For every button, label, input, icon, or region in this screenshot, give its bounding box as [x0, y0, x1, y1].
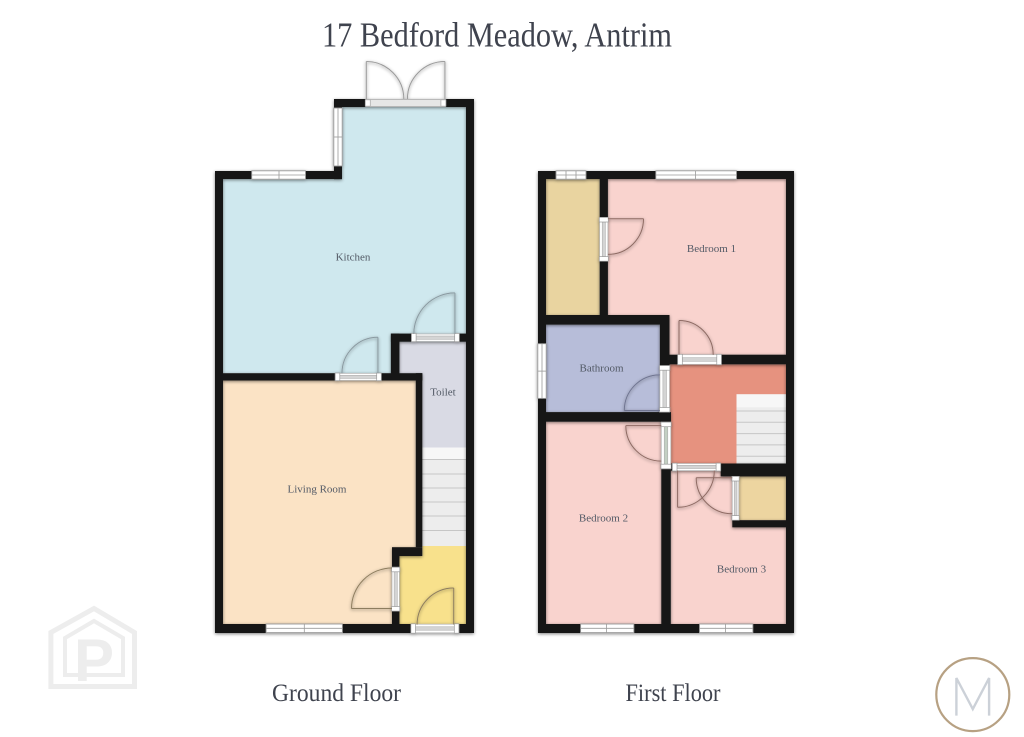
svg-text:Kitchen: Kitchen — [336, 252, 371, 264]
svg-text:P: P — [74, 627, 114, 694]
svg-text:Toilet: Toilet — [430, 387, 456, 399]
svg-text:17 Bedford Meadow, Antrim: 17 Bedford Meadow, Antrim — [322, 16, 672, 55]
svg-text:Living Room: Living Room — [288, 484, 347, 496]
svg-text:First Floor: First Floor — [626, 680, 722, 707]
svg-text:Bedroom 2: Bedroom 2 — [579, 513, 628, 525]
svg-text:Ground Floor: Ground Floor — [272, 680, 402, 707]
svg-text:Bathroom: Bathroom — [580, 363, 624, 375]
svg-text:Bedroom 1: Bedroom 1 — [687, 243, 736, 255]
svg-text:Bedroom 3: Bedroom 3 — [717, 564, 767, 576]
